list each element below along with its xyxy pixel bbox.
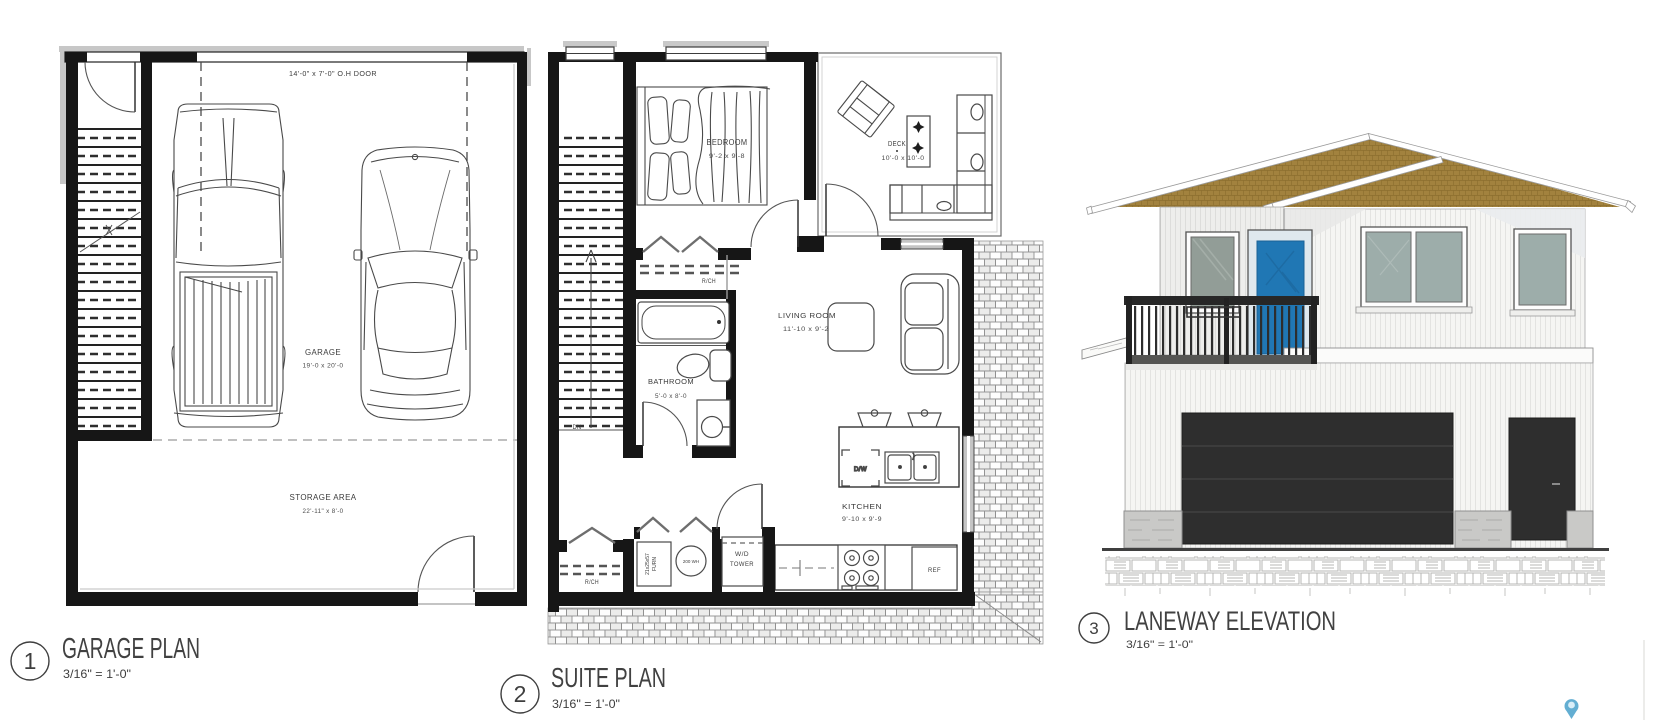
- svg-text:21x25x57: 21x25x57: [645, 553, 651, 575]
- svg-text:LANEWAY ELEVATION: LANEWAY ELEVATION: [1124, 606, 1336, 636]
- svg-text:BEDROOM: BEDROOM: [707, 138, 748, 147]
- svg-text:200 WH: 200 WH: [683, 559, 699, 564]
- svg-text:3: 3: [1089, 619, 1098, 638]
- svg-text:3/16" = 1'-0": 3/16" = 1'-0": [1126, 639, 1193, 651]
- svg-text:19'-0 x 20'-0: 19'-0 x 20'-0: [303, 363, 344, 370]
- svg-text:W/D: W/D: [735, 552, 749, 558]
- svg-text:14'-0" x 7'-0" O.H DOOR: 14'-0" x 7'-0" O.H DOOR: [289, 71, 377, 78]
- svg-text:2: 2: [514, 681, 527, 707]
- svg-text:R/CH: R/CH: [702, 279, 716, 285]
- svg-text:GARAGE PLAN: GARAGE PLAN: [62, 633, 200, 665]
- svg-text:9'-2 x 9'-8: 9'-2 x 9'-8: [709, 153, 745, 160]
- svg-text:BATHROOM: BATHROOM: [648, 377, 694, 386]
- svg-text:REF: REF: [928, 568, 941, 574]
- svg-text:10'-0 x 10'-0: 10'-0 x 10'-0: [882, 156, 925, 162]
- svg-text:SUITE PLAN: SUITE PLAN: [551, 662, 666, 693]
- svg-text:5'-0 x 8'-0: 5'-0 x 8'-0: [655, 394, 687, 400]
- svg-text:GARAGE: GARAGE: [305, 348, 341, 357]
- svg-text:22'-11" x 8'-0: 22'-11" x 8'-0: [303, 508, 344, 515]
- svg-text:D/W: D/W: [854, 467, 867, 473]
- svg-text:KITCHEN: KITCHEN: [842, 502, 882, 511]
- svg-text:3/16" = 1'-0": 3/16" = 1'-0": [552, 697, 620, 711]
- svg-text:R/CH: R/CH: [585, 580, 599, 586]
- svg-text:TOWER: TOWER: [730, 562, 754, 568]
- svg-text:3/16" = 1'-0": 3/16" = 1'-0": [63, 667, 131, 681]
- svg-text:LIVING ROOM: LIVING ROOM: [778, 311, 836, 320]
- svg-text:FURN: FURN: [652, 557, 658, 571]
- svg-text:DECK: DECK: [888, 141, 906, 148]
- svg-text:11'-10 x 9'-2: 11'-10 x 9'-2: [783, 327, 829, 333]
- svg-text:STORAGE AREA: STORAGE AREA: [290, 493, 357, 502]
- svg-text:9'-10 x 9'-9: 9'-10 x 9'-9: [842, 517, 882, 523]
- svg-text:1: 1: [24, 648, 37, 674]
- svg-text:DN: DN: [573, 425, 582, 431]
